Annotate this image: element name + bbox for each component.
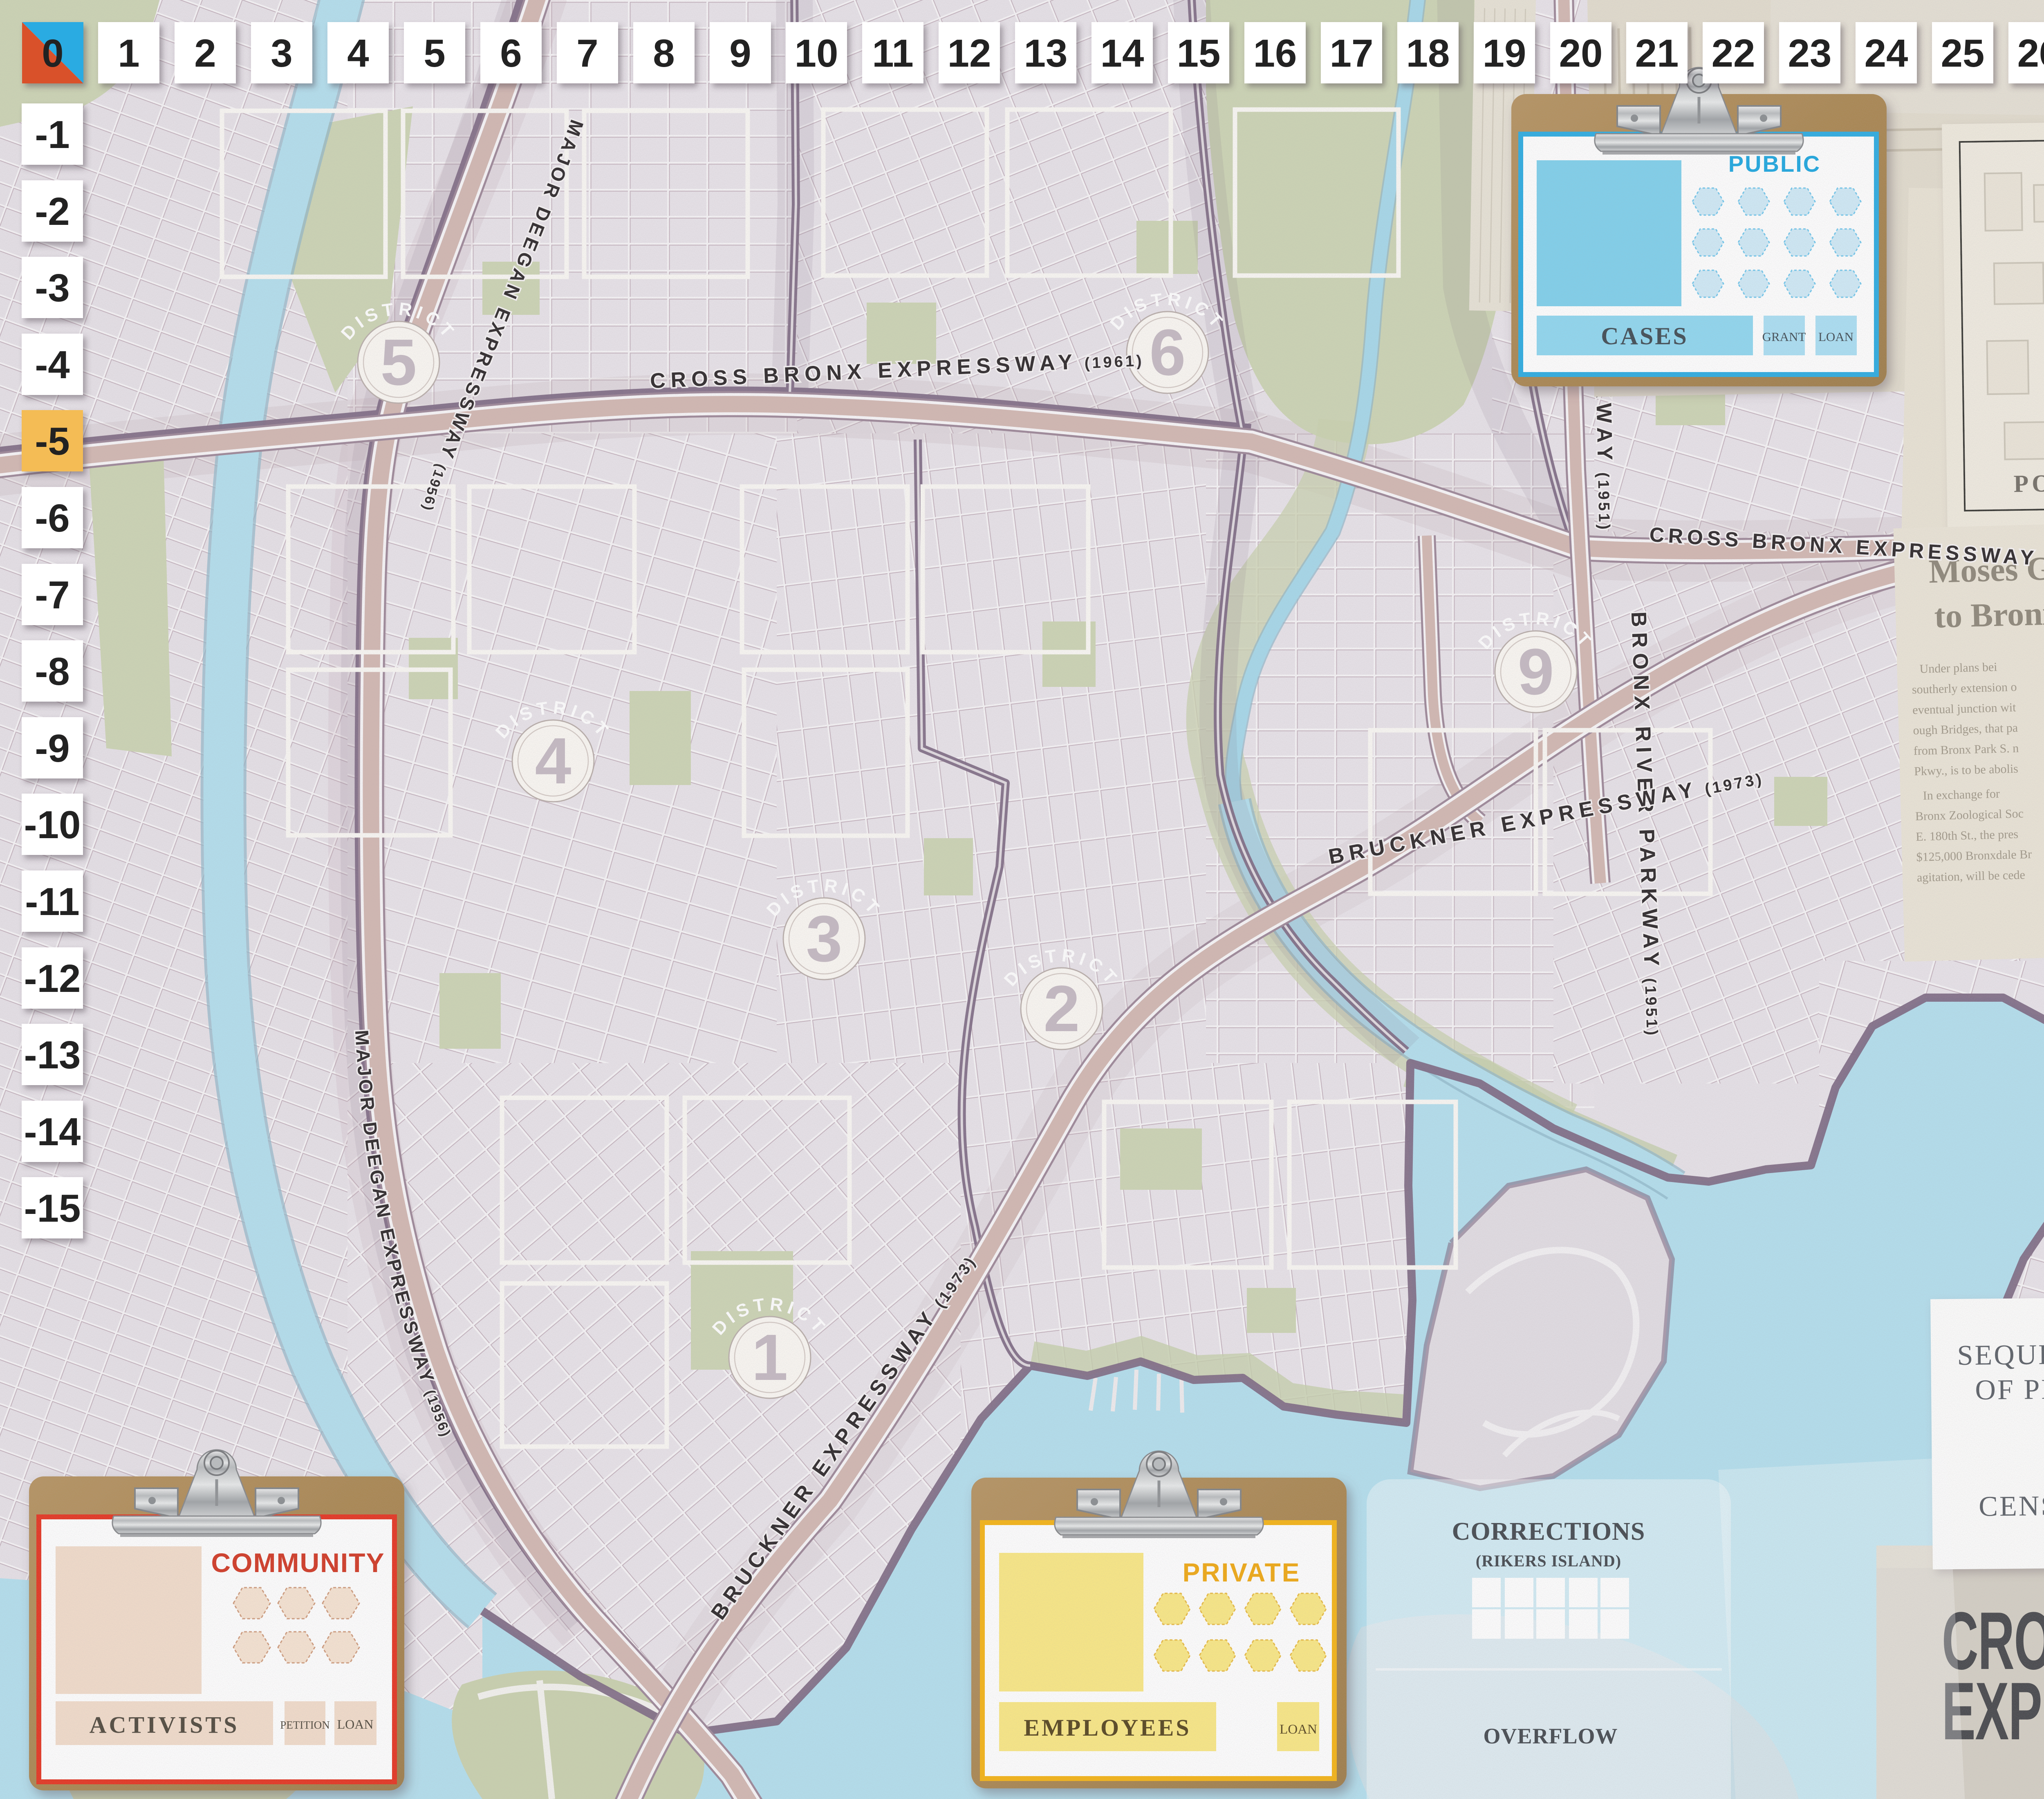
svg-text:9: 9: [729, 31, 751, 75]
svg-text:14: 14: [1100, 31, 1144, 75]
svg-text:21: 21: [1635, 31, 1679, 75]
svg-text:-10: -10: [24, 803, 81, 847]
svg-text:7: 7: [576, 31, 598, 75]
svg-text:13: 13: [1024, 31, 1068, 75]
svg-text:19: 19: [1483, 31, 1526, 75]
svg-text:17: 17: [1330, 31, 1374, 75]
svg-text:22: 22: [1712, 31, 1755, 75]
svg-text:8: 8: [653, 31, 675, 75]
svg-text:18: 18: [1406, 31, 1450, 75]
svg-text:20: 20: [1559, 31, 1603, 75]
svg-text:6: 6: [500, 31, 522, 75]
svg-text:-1: -1: [35, 113, 69, 157]
svg-text:-2: -2: [35, 190, 69, 233]
svg-text:-11: -11: [25, 880, 79, 924]
svg-text:23: 23: [1788, 31, 1832, 75]
svg-text:15: 15: [1177, 31, 1221, 75]
svg-text:-9: -9: [35, 727, 69, 770]
svg-text:3: 3: [271, 31, 292, 75]
svg-text:-14: -14: [24, 1110, 81, 1154]
svg-text:10: 10: [795, 31, 838, 75]
svg-text:-3: -3: [35, 266, 69, 310]
svg-text:4: 4: [347, 31, 369, 75]
svg-text:-4: -4: [35, 343, 69, 387]
svg-text:16: 16: [1253, 31, 1297, 75]
svg-text:1: 1: [118, 31, 139, 75]
svg-text:-6: -6: [35, 496, 69, 540]
svg-text:26: 26: [2017, 31, 2044, 75]
svg-text:-8: -8: [35, 650, 69, 693]
svg-text:12: 12: [948, 31, 991, 75]
svg-text:5: 5: [424, 31, 445, 75]
svg-text:24: 24: [1865, 31, 1908, 75]
svg-text:25: 25: [1941, 31, 1985, 75]
svg-text:-7: -7: [35, 573, 69, 617]
svg-text:-5: -5: [35, 419, 69, 463]
svg-text:-12: -12: [24, 957, 81, 1000]
svg-text:-15: -15: [24, 1187, 81, 1230]
svg-text:-13: -13: [24, 1033, 81, 1077]
svg-text:0: 0: [42, 31, 63, 75]
svg-text:11: 11: [872, 31, 913, 75]
svg-text:2: 2: [194, 31, 216, 75]
